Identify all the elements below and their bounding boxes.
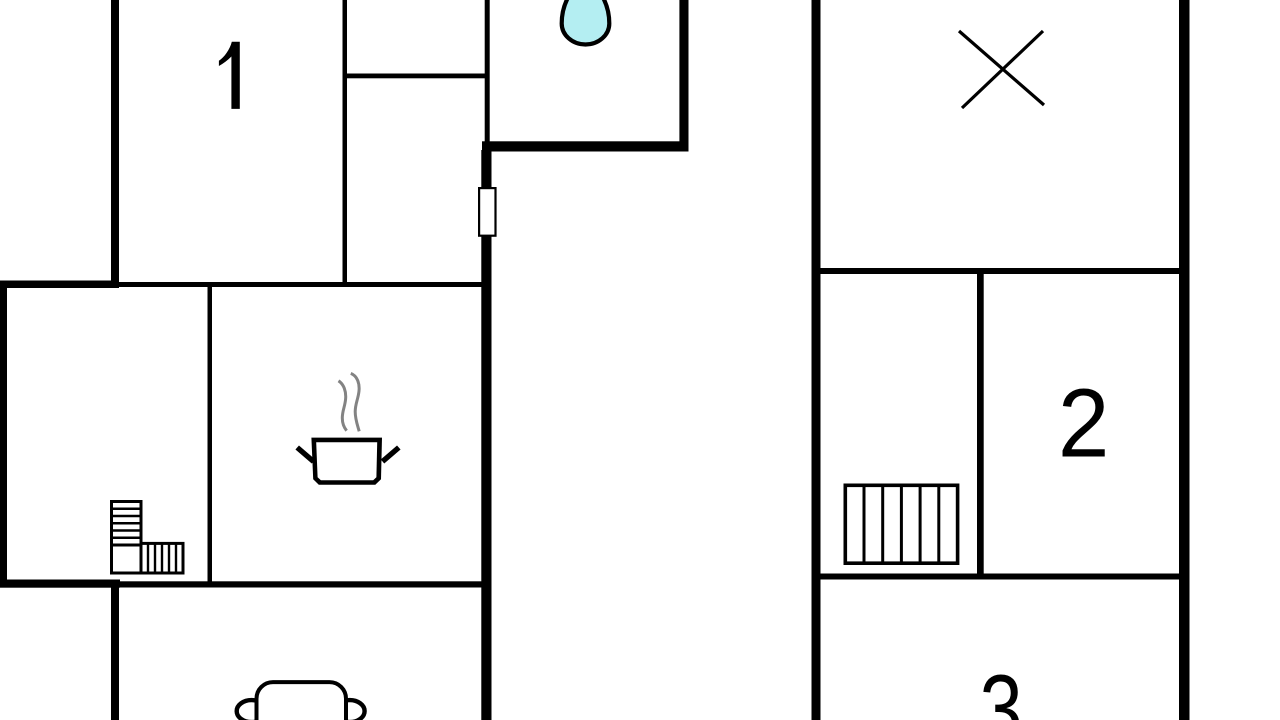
svg-text:2: 2 — [1058, 370, 1110, 478]
svg-text:3: 3 — [980, 654, 1023, 720]
